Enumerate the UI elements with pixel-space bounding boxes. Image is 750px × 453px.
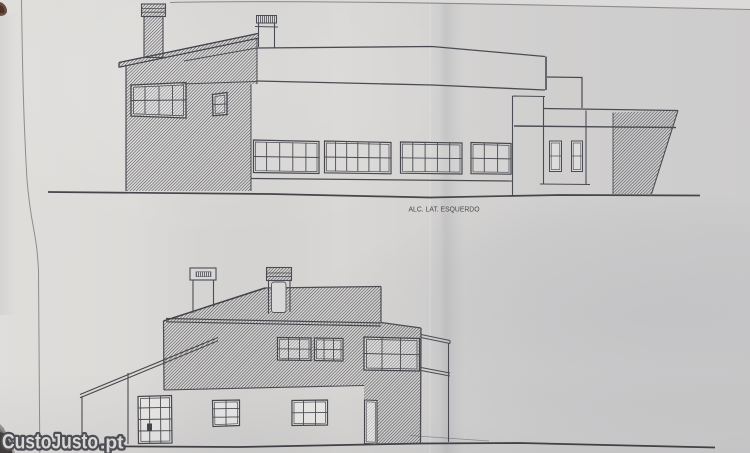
svg-text:.pt: .pt [100,433,124,453]
svg-text:ALC. LAT. ESQUERDO: ALC. LAT. ESQUERDO [409,205,480,214]
svg-text:CustoJusto: CustoJusto [2,431,98,453]
